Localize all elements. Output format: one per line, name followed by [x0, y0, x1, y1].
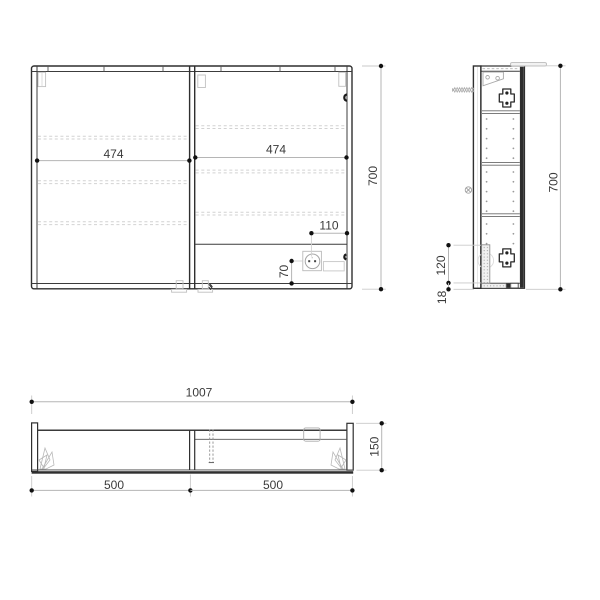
svg-text:500: 500 — [104, 478, 124, 492]
svg-text:150: 150 — [368, 436, 382, 456]
svg-text:18: 18 — [435, 290, 449, 304]
svg-text:500: 500 — [263, 478, 283, 492]
svg-text:474: 474 — [266, 143, 286, 157]
svg-text:110: 110 — [319, 218, 338, 232]
svg-text:700: 700 — [546, 172, 560, 192]
svg-text:1007: 1007 — [186, 385, 213, 399]
svg-text:120: 120 — [434, 255, 448, 275]
svg-text:70: 70 — [277, 265, 291, 279]
svg-text:700: 700 — [366, 166, 380, 186]
svg-text:474: 474 — [103, 147, 123, 161]
